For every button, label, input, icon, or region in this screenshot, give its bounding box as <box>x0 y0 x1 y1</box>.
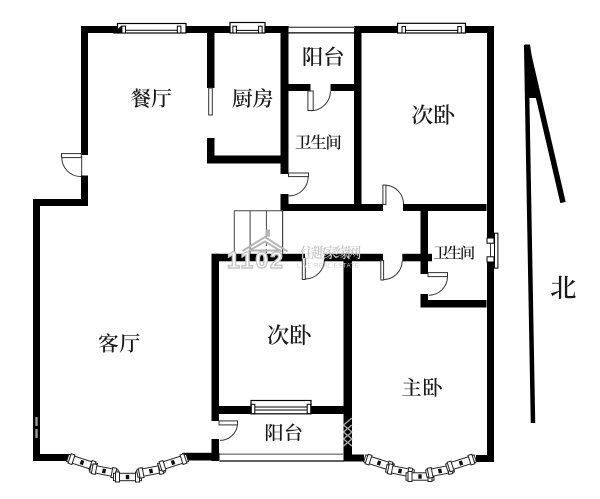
svg-text:LIVE REAL ESTATE: LIVE REAL ESTATE <box>297 264 359 270</box>
svg-text:1102: 1102 <box>227 247 285 273</box>
